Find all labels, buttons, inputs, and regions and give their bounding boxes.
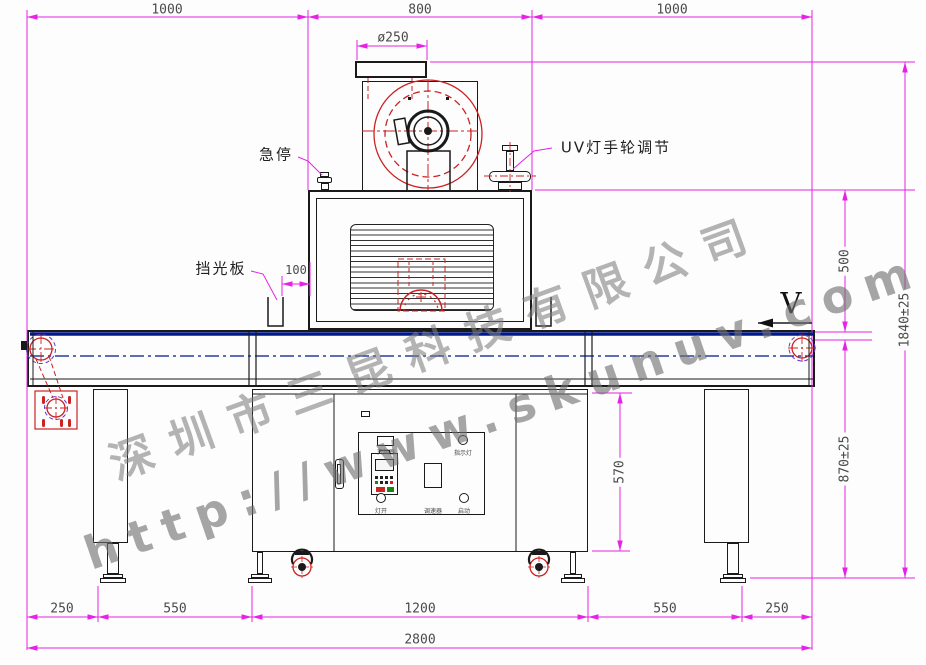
dim-housing-height: 500 <box>838 246 853 275</box>
dim-bottom-1: 550 <box>163 602 186 617</box>
dim-top-mid: 800 <box>408 3 431 18</box>
extension-lines <box>27 10 915 650</box>
dim-top-left: 1000 <box>151 3 182 18</box>
dim-overall-height: 1840±25 <box>898 290 913 351</box>
dim-bottom-4: 250 <box>765 602 788 617</box>
dim-cabinet-height: 570 <box>613 457 628 486</box>
speed-label: 调速器 <box>424 506 442 515</box>
belt-lines <box>30 334 813 356</box>
dim-fan-diameter: ø250 <box>377 31 408 46</box>
dim-overall-length: 2800 <box>404 633 435 648</box>
engineering-drawing-canvas: 变频器 指示灯 灯开 调速器 启动 1000 800 1000 ø250 100… <box>0 0 926 665</box>
light-shield-label: 挡光板 <box>195 258 246 279</box>
belt-direction-label: V <box>781 286 802 320</box>
dim-shield-offset: 100 <box>285 263 307 277</box>
lamp-switch-label: 灯开 <box>375 506 387 515</box>
dim-bottom-2: 1200 <box>404 602 435 617</box>
emergency-stop-label: 急停 <box>259 144 293 165</box>
dim-belt-height: 870±25 <box>838 433 853 486</box>
hidden-circles <box>27 335 816 420</box>
uv-handwheel-label: UV灯手轮调节 <box>561 137 671 158</box>
drawing-linework <box>0 0 926 665</box>
dim-bottom-3: 550 <box>653 602 676 617</box>
leader-lines <box>251 148 552 300</box>
dim-top-right: 1000 <box>656 3 687 18</box>
indicator-label: 指示灯 <box>454 448 472 457</box>
red-details <box>26 78 816 578</box>
inverter-label: 变频器 <box>377 447 395 456</box>
dim-bottom-0: 250 <box>50 602 73 617</box>
start-label: 启动 <box>458 506 470 515</box>
